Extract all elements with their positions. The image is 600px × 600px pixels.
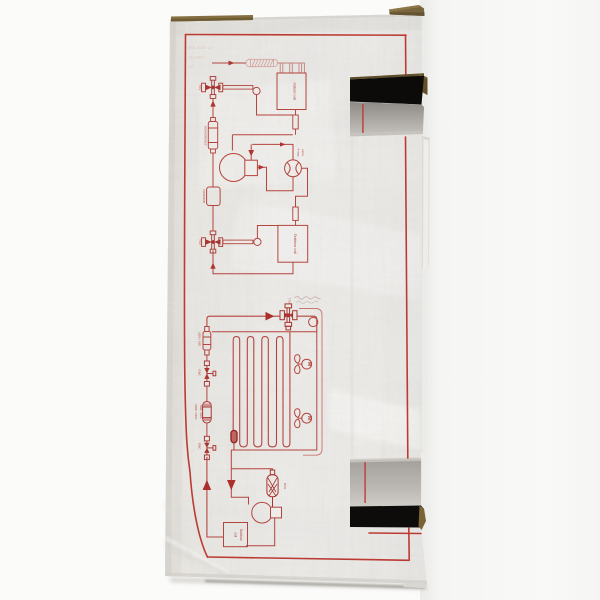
- svg-text:DAS: DAS: [283, 483, 287, 489]
- svg-text:Outdoor coil: Outdoor coil: [293, 234, 297, 255]
- svg-text:GBC: GBC: [198, 369, 202, 376]
- svg-text:DCR/DAB: DCR/DAB: [202, 190, 206, 204]
- svg-text:Indoor coil: Indoor coil: [293, 83, 297, 101]
- svg-text:TXV: TXV: [198, 239, 202, 245]
- svg-text:TXV: TXV: [288, 298, 292, 304]
- svg-text:M: M: [306, 416, 312, 421]
- svg-text:4-way: 4-way: [296, 148, 300, 157]
- svg-text:SGI/SGN/SGS: SGI/SGN/SGS: [203, 126, 207, 146]
- svg-text:coil: coil: [234, 532, 238, 537]
- svg-text:DMC / DCC: DMC / DCC: [194, 404, 198, 419]
- svg-text:GBC: GBC: [198, 443, 202, 450]
- svg-text:M: M: [306, 362, 312, 367]
- svg-text:TXV: TXV: [198, 85, 202, 91]
- svg-text:Outdoor: Outdoor: [239, 529, 243, 542]
- svg-text:KFR-35GW 12: KFR-35GW 12: [188, 46, 212, 50]
- svg-text:GB 4343.2: GB 4343.2: [188, 56, 205, 60]
- svg-text:SGN / SGI: SGN / SGI: [198, 332, 202, 346]
- svg-text:valve: valve: [301, 149, 305, 157]
- svg-text:QX: QX: [188, 65, 194, 69]
- svg-text:DML / DCL: DML / DCL: [199, 405, 203, 420]
